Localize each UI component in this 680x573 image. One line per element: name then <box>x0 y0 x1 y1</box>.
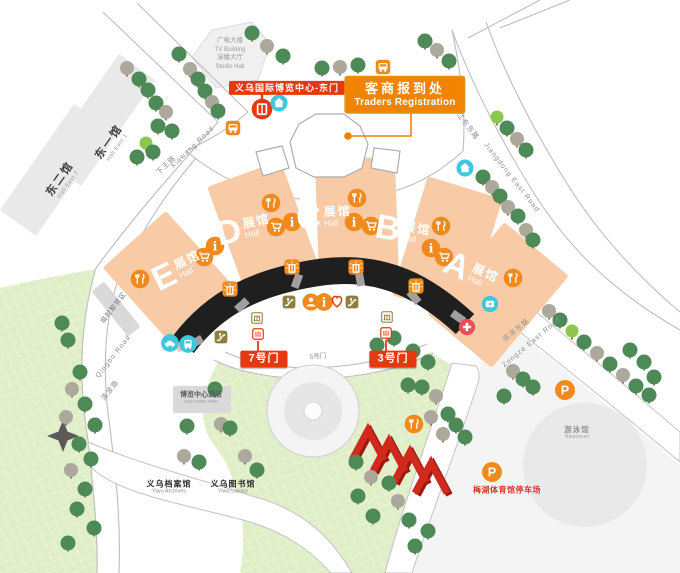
tv-building-zh: 广电大楼 <box>215 37 246 46</box>
natatorium-building <box>523 403 647 527</box>
bus-stop-icon <box>375 59 392 76</box>
tv-building-en: TV Building <box>215 46 246 54</box>
expo-map: iiiiiPP 东二馆 Hall East 2 东一馆 Hall East 1 … <box>0 0 680 573</box>
gate-7-label: 7号门 <box>240 351 287 368</box>
east-gate-callout: 义乌国际博览中心-东门 <box>229 81 345 95</box>
east-halls <box>0 54 155 236</box>
fountain <box>267 365 359 457</box>
escalator-icon <box>282 295 297 310</box>
hall-entrance-icon <box>407 277 426 296</box>
checkpoint-icon <box>380 310 394 324</box>
escalator-icon <box>214 330 229 345</box>
media-icon <box>481 295 499 313</box>
svg-text:P: P <box>488 465 496 479</box>
gate-pin-icon <box>251 327 265 341</box>
traders-en: Traders Registration <box>354 97 455 109</box>
hall-c-label: C 展馆Hall <box>296 199 353 235</box>
hall-en: Hall <box>324 218 352 228</box>
east-gate-text: 义乌国际博览中心-东门 <box>235 83 339 93</box>
restaurant-icon <box>503 268 523 288</box>
person-icon <box>302 293 321 312</box>
gate-text: 5号门 <box>309 352 326 361</box>
service-center-icon <box>456 159 475 178</box>
natatorium-label: 游泳馆 Natatorium <box>564 426 590 440</box>
studio-hall-zh: 演播大厅 <box>215 54 246 63</box>
traders-registration-callout: 客商报到处 Traders Registration <box>344 76 465 114</box>
restaurant-icon <box>130 269 150 289</box>
hall-entrance-icon <box>347 258 366 277</box>
svg-text:i: i <box>213 239 218 254</box>
archives-label: 义乌档案馆 Yiwu Archives <box>147 479 192 495</box>
tv-building-label: 广电大楼 TV Building 演播大厅 Studio Hall <box>215 37 246 71</box>
library-zh: 义乌图书馆 <box>211 479 256 488</box>
svg-text:i: i <box>352 215 357 230</box>
service-center-icon <box>270 94 289 113</box>
archives-en: Yiwu Archives <box>147 488 192 494</box>
hotel-label: 博览中心酒店 Expo Center Hotel <box>180 392 222 405</box>
library-label: 义乌图书馆 Yiwu Library <box>211 479 256 495</box>
shuttle-bus-icon <box>179 335 198 354</box>
gate-pin-icon <box>379 326 393 340</box>
restaurant-icon <box>431 216 451 236</box>
hall-letter: C <box>296 200 322 235</box>
svg-text:i: i <box>429 241 434 256</box>
studio-hall-en: Studio Hall <box>215 63 246 71</box>
heart-icon <box>328 292 346 310</box>
meihu-parking-label: 梅湖体育馆停车场 <box>473 485 541 494</box>
traders-callout-dot <box>344 132 352 140</box>
library-en: Yiwu Library <box>211 488 256 494</box>
hotel-en: Expo Center Hotel <box>180 400 222 405</box>
hall-letter: B <box>373 209 403 247</box>
traders-zh: 客商报到处 <box>354 82 455 97</box>
natatorium-en: Natatorium <box>564 434 590 440</box>
checkpoint-icon <box>250 311 264 325</box>
parking-icon: P <box>555 380 576 401</box>
svg-text:i: i <box>290 215 295 230</box>
svg-text:i: i <box>322 295 327 309</box>
archives-zh: 义乌档案馆 <box>147 479 192 488</box>
bus-stop-icon <box>225 120 242 137</box>
escalator-icon <box>345 295 360 310</box>
first-aid-icon <box>458 318 476 336</box>
restaurant-icon <box>404 414 424 434</box>
gate-text: 7号门 <box>248 353 279 365</box>
hall-entrance-icon <box>221 280 240 299</box>
entrance-lobby <box>256 114 400 177</box>
hall-entrance-icon <box>283 258 302 277</box>
svg-text:P: P <box>561 383 569 397</box>
taxi-icon <box>161 334 180 353</box>
gate-text: 3号门 <box>377 353 408 365</box>
gate-3-label: 3号门 <box>369 351 416 368</box>
parking-icon: P <box>482 462 503 483</box>
meihu-text: 梅湖体育馆停车场 <box>473 485 541 494</box>
